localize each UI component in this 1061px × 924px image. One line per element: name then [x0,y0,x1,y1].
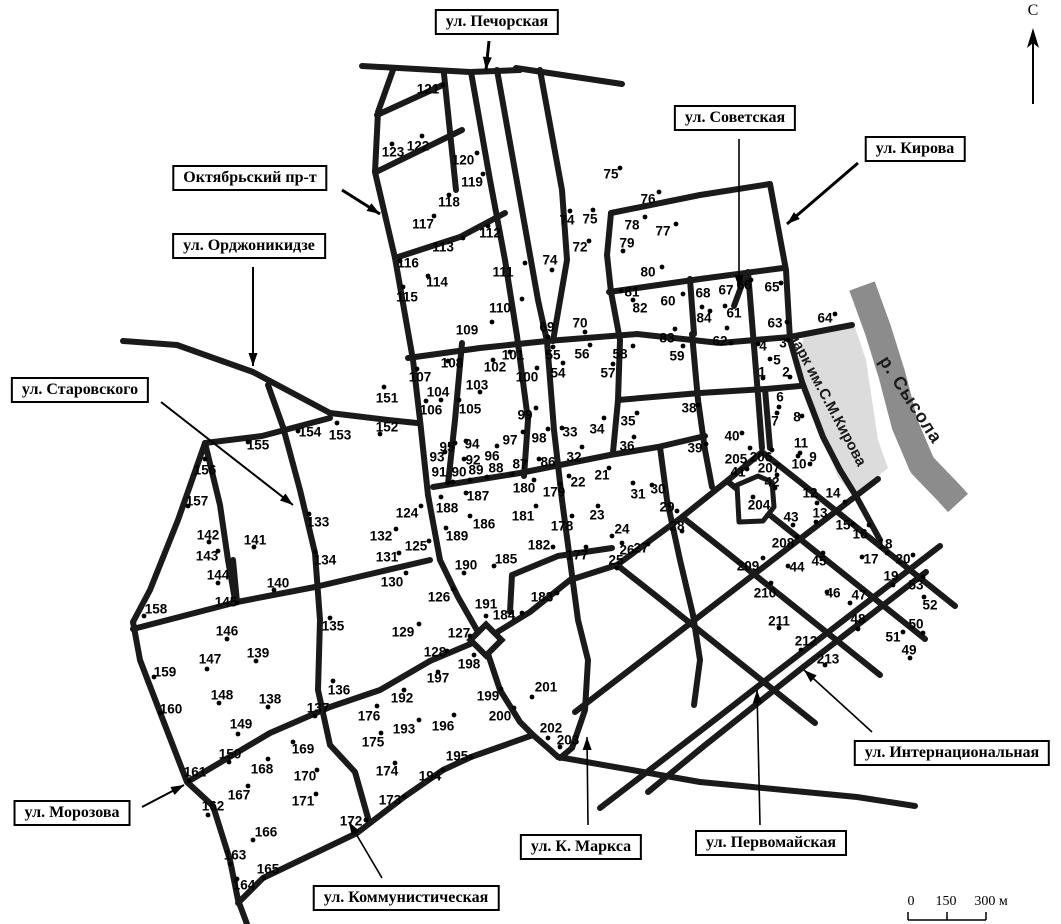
point-dot [404,571,409,576]
road [516,68,622,84]
point-number: 115 [396,290,418,305]
numbered-point: 52 [922,595,938,613]
point-number: 15 [835,518,851,533]
point-number: 72 [572,240,587,255]
point-number: 171 [292,794,315,809]
label-arrow-line [161,402,293,505]
point-number: 148 [211,688,234,703]
label-arrow-line [787,163,858,224]
street-label-pechorskaya: ул. Печорская [435,9,559,35]
numbered-point: 157 [186,494,209,509]
numbered-point: 1 [758,365,766,381]
numbered-point: 179 [543,482,566,500]
point-number: 64 [817,311,833,326]
numbered-point: 29 [659,500,679,515]
point-number: 75 [582,212,598,227]
point-dot [740,431,745,436]
point-number: 119 [461,175,483,190]
point-number: 10 [791,457,806,472]
numbered-point: 194 [419,768,446,784]
point-dot [785,320,790,325]
point-dot [394,527,399,532]
numbered-point: 199 [477,687,504,704]
numbered-point: 40 [724,429,744,444]
numbered-point: 74 [542,253,558,273]
point-number: 62 [712,334,727,349]
point-number: 133 [307,515,330,530]
point-number: 106 [420,403,443,418]
point-number: 110 [489,301,511,316]
point-number: 142 [197,528,220,543]
point-number: 156 [194,463,217,478]
numbered-point: 174 [376,761,399,779]
road [533,735,558,757]
numbered-point: 35 [620,411,639,429]
point-dot [550,268,555,273]
numbered-point: 146 [216,624,239,642]
numbered-point: 153 [329,421,352,443]
point-number: 69 [539,320,554,335]
scale-tick-150: 150 [926,894,966,910]
numbered-point: 49 [901,643,916,661]
numbered-point: 31 [630,481,646,502]
point-number: 123 [382,145,405,160]
numbered-point: 128 [424,645,450,660]
numbered-point: 72 [572,239,591,255]
point-number: 53 [908,578,924,593]
point-dot [446,481,451,486]
point-number: 36 [619,439,635,454]
numbered-point: 196 [432,713,457,734]
point-number: 31 [630,487,646,502]
point-number: 50 [908,617,923,632]
point-number: 166 [255,825,278,840]
point-number: 12 [802,486,817,501]
numbered-point: 23 [589,504,605,523]
point-number: 155 [247,438,270,453]
point-dot [901,630,906,635]
numbered-point: 175 [362,731,385,750]
numbered-point: 111 [492,261,527,280]
point-number: 84 [696,311,712,326]
point-dot [631,481,636,486]
point-dot [911,553,916,558]
point-number: 74 [559,213,575,228]
point-number: 211 [768,614,790,629]
point-number: 207 [758,461,781,476]
point-number: 168 [251,762,274,777]
point-dot [729,341,734,346]
point-number: 161 [184,765,207,780]
numbered-point: 120 [452,151,480,168]
street-label-k-marksa: ул. К. Маркса [520,834,642,860]
point-number: 81 [624,285,640,300]
street-label-kommunisticheskaya: ул. Коммунистическая [313,885,500,911]
numbered-point: 186 [468,514,496,532]
numbered-point: 177 [566,545,589,563]
street-label-oktyabrsky-prospekt: Октябрьский пр-т [172,165,327,191]
numbered-point: 75 [603,166,622,182]
label-arrow-head [367,203,380,214]
point-number: 76 [640,192,656,207]
numbered-point: 134 [313,550,337,568]
label-arrow-head [170,785,184,795]
numbered-point: 78 [624,215,647,233]
point-dot [530,695,535,700]
point-number: 144 [207,568,230,583]
numbered-point: 54 [550,361,566,381]
point-number: 20 [895,552,910,567]
point-number: 180 [513,481,536,496]
point-number: 185 [495,552,518,567]
point-number: 167 [228,788,251,803]
point-number: 162 [202,799,225,814]
point-number: 35 [620,414,636,429]
point-number: 97 [502,433,517,448]
point-number: 34 [589,422,605,437]
north-letter: С [1018,2,1048,20]
point-number: 190 [455,558,478,573]
point-number: 163 [224,848,247,863]
point-number: 82 [632,301,647,316]
point-number: 17 [863,552,878,567]
numbered-point: 169 [291,740,315,757]
point-number: 181 [512,509,535,524]
point-number: 145 [215,595,238,610]
point-number: 29 [659,500,674,515]
point-dot [490,320,495,325]
point-dot [451,587,456,592]
point-number: 100 [516,370,539,385]
point-dot [675,509,680,514]
road [611,184,770,213]
scale-tick-0: 0 [896,894,926,910]
numbered-point: 180 [513,478,537,496]
point-number: 92 [465,453,480,468]
point-number: 121 [417,82,440,97]
numbered-point: 56 [574,343,592,362]
point-number: 105 [459,402,482,417]
numbered-point: 103 [466,378,489,395]
numbered-point: 109 [456,320,495,338]
numbered-point: 82 [631,298,648,316]
point-dot [402,795,407,800]
street-label-kirova: ул. Кирова [865,136,966,162]
point-number: 94 [464,437,480,452]
numbered-point: 68 [695,286,711,310]
numbered-point: 117 [412,214,436,232]
numbered-point: 147 [199,652,222,672]
point-number: 117 [412,217,434,232]
road [133,560,430,629]
road [660,447,700,705]
point-dot [523,261,528,266]
numbered-point: 65 [764,280,783,295]
point-dot [795,535,800,540]
north-arrow-icon [1018,20,1048,106]
point-number: 28 [669,519,685,534]
numbered-point: 62 [712,334,733,349]
point-number: 191 [475,597,498,612]
point-dot [546,335,551,340]
numbered-point: 127 [448,626,473,641]
point-number: 134 [314,553,337,568]
point-dot [602,416,607,421]
point-number: 140 [267,576,290,591]
point-dot [439,495,444,500]
numbered-point: 104 [424,385,450,404]
road [690,279,694,334]
point-number: 213 [817,652,840,667]
numbered-point: 11 [794,436,809,456]
numbered-point: 189 [444,526,469,544]
point-number: 9 [809,450,817,465]
numbered-point: 21 [594,466,611,483]
point-number: 19 [883,569,898,584]
numbered-point: 192 [391,688,414,706]
point-dot [499,687,504,692]
numbered-point: 86 [537,455,556,470]
point-number: 154 [299,425,322,440]
point-dot [643,215,648,220]
point-number: 5 [773,353,781,368]
point-dot [521,430,526,435]
point-number: 179 [543,485,566,500]
point-number: 21 [594,468,610,483]
point-number: 45 [811,554,827,569]
label-arrow-head [583,737,592,750]
road [238,735,533,903]
point-number: 44 [789,560,805,575]
point-dot [546,736,551,741]
numbered-point: 164 [233,877,256,893]
point-dot [469,755,474,760]
numbered-point: 207 [758,461,781,478]
point-number: 212 [795,634,818,649]
road [510,548,612,612]
point-dot [461,236,466,241]
numbered-point: 8 [793,410,804,425]
point-dot [777,405,782,410]
street-label-morozova: ул. Морозова [14,800,131,826]
numbered-point: 119 [461,172,485,190]
point-dot [520,611,525,616]
point-number: 159 [154,665,177,680]
point-number: 116 [397,256,419,271]
numbered-point: 131 [376,550,402,565]
road [765,389,770,448]
numbered-point: 112 [479,224,501,241]
numbered-point: 10 [791,454,806,472]
numbered-point: 99 [517,406,538,423]
point-dot [236,732,241,737]
point-dot [314,792,319,797]
point-number: 131 [376,550,399,565]
point-number: 30 [650,482,665,497]
numbered-point: 171 [292,792,319,809]
point-number: 124 [396,506,419,521]
point-number: 138 [259,692,282,707]
point-number: 153 [329,428,352,443]
point-number: 63 [767,316,783,331]
point-number: 61 [726,306,742,321]
point-number: 197 [427,671,450,686]
point-number: 80 [640,265,655,280]
point-number: 174 [376,764,399,779]
point-dot [468,478,473,483]
numbered-point: 80 [640,265,664,280]
point-number: 193 [393,722,416,737]
north-indicator: С [1018,2,1048,111]
point-number: 199 [477,689,500,704]
point-number: 175 [362,735,385,750]
scale-tick-300: 300 м [966,894,1016,910]
point-number: 55 [545,348,561,363]
numbered-point: 190 [455,558,478,576]
point-number: 164 [233,878,256,893]
numbered-point: 105 [457,398,482,417]
numbered-point: 135 [322,616,345,634]
numbered-point: 102 [484,358,507,375]
scale-bar: 0 150 300 м [896,894,1026,924]
road [607,213,620,452]
point-number: 139 [247,646,270,661]
point-number: 170 [294,769,317,784]
numbered-point: 55 [545,345,561,363]
point-number: 98 [531,431,547,446]
numbered-point: 106 [420,398,444,418]
point-number: 204 [748,498,771,513]
numbered-point: 193 [393,718,422,737]
point-number: 108 [441,356,464,371]
point-number: 51 [885,630,901,645]
numbered-point: 12 [802,486,819,506]
point-number: 111 [492,265,514,280]
numbered-point: 6 [776,390,784,410]
numbered-point: 45 [811,551,827,569]
point-number: 112 [479,226,501,241]
point-dot [451,480,456,485]
point-number: 102 [484,360,507,375]
numbered-point: 116 [397,256,419,271]
point-number: 125 [405,539,428,554]
point-dot [335,421,340,426]
numbered-point: 203 [557,733,580,750]
point-number: 195 [446,749,469,764]
numbered-point: 122 [407,134,430,154]
point-dot [674,222,679,227]
point-number: 60 [660,294,675,309]
point-number: 127 [448,626,471,641]
numbered-point: 2 [782,365,792,380]
numbered-point: 58 [612,344,635,362]
numbered-point: 139 [247,646,270,664]
numbered-point: 98 [531,427,550,446]
point-number: 141 [244,533,267,548]
numbered-point: 158 [142,602,168,619]
numbered-point: 183 [531,590,560,605]
point-dot [364,818,369,823]
numbered-point: 24 [610,522,630,539]
numbered-point: 79 [619,236,634,254]
street-label-internatsionalnaya: ул. Интернациональная [854,740,1050,766]
numbered-point: 145 [215,595,240,610]
numbered-point: 36 [619,435,636,454]
point-number: 160 [160,702,183,717]
point-number: 165 [257,862,280,877]
numbered-point: 136 [328,679,351,698]
point-dot [534,406,539,411]
label-arrow-head [249,353,258,366]
point-number: 8 [793,410,801,425]
numbered-point: 138 [259,692,282,710]
numbered-point: 67 [718,283,733,309]
point-number: 157 [186,494,209,509]
point-number: 177 [566,548,589,563]
point-number: 169 [292,742,315,757]
numbered-point: 181 [512,504,539,524]
point-number: 11 [794,436,809,451]
street-label-ordzhonikidze: ул. Орджоникидзе [172,233,326,259]
point-dot [700,305,705,310]
point-number: 59 [669,349,684,364]
numbered-point: 151 [376,385,399,406]
numbered-point: 182 [528,538,556,553]
point-number: 49 [901,643,916,658]
road [330,413,417,423]
label-arrow-line [757,690,760,825]
point-number: 52 [922,598,937,613]
point-dot [203,457,208,462]
point-number: 128 [424,645,447,660]
label-arrow-line [587,737,588,825]
numbered-point: 140 [267,576,290,593]
point-dot [520,297,525,302]
point-number: 65 [764,280,780,295]
point-number: 39 [687,441,702,456]
numbered-point: 81 [619,285,640,300]
point-dot [427,539,432,544]
numbered-point: 154 [296,425,322,440]
point-dot [798,451,803,456]
road [123,341,177,345]
point-dot [475,151,480,156]
point-number: 46 [825,586,841,601]
numbered-point: 152 [376,420,399,437]
numbered-point: 213 [817,652,840,668]
point-number: 7 [771,414,779,429]
numbered-point: 143 [196,549,221,564]
numbered-point: 41 [730,465,749,480]
numbered-point: 123 [382,142,405,160]
numbered-point: 108 [441,356,464,371]
point-dot [761,556,766,561]
numbered-point: 124 [396,504,424,521]
point-number: 208 [772,536,795,551]
point-number: 1 [758,365,766,380]
point-number: 176 [358,709,381,724]
numbered-point: 61 [725,306,742,331]
point-dot [619,289,624,294]
numbered-point: 163 [224,848,247,867]
road [617,565,815,723]
street-label-sovetskaya: ул. Советская [674,105,796,131]
numbered-point: 59 [669,344,685,364]
numbered-point: 9 [808,450,817,467]
point-number: 78 [624,218,640,233]
point-dot [512,706,517,711]
numbered-point: 170 [294,768,320,784]
